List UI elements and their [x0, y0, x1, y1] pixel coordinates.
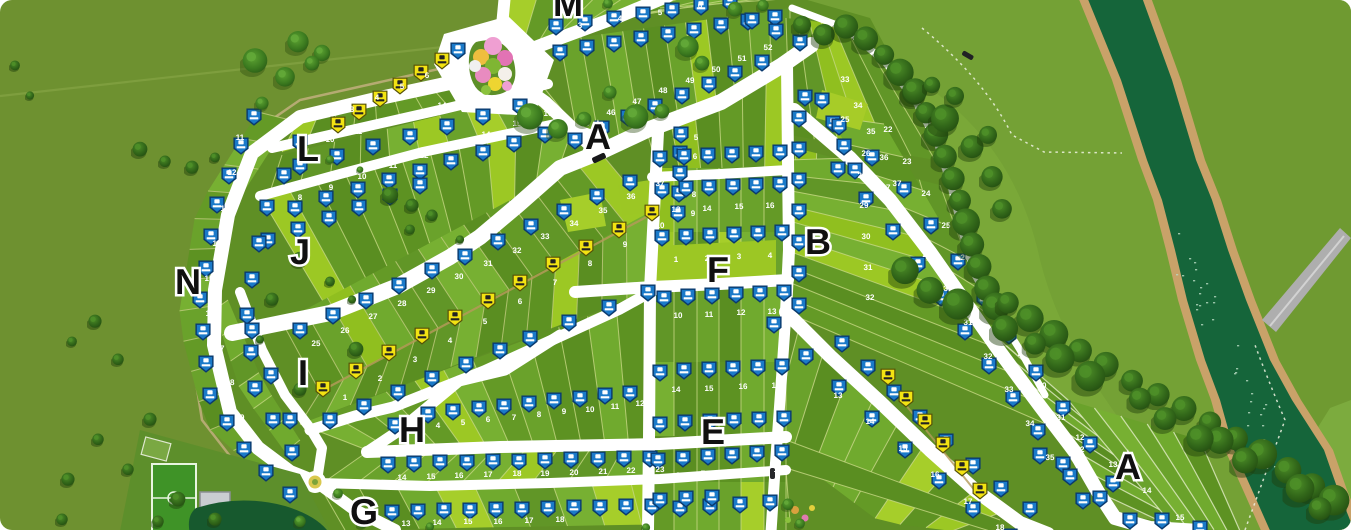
svg-text:22: 22 — [627, 466, 636, 475]
svg-text:9: 9 — [751, 467, 756, 476]
svg-text:H: H — [399, 409, 425, 450]
svg-text:36: 36 — [627, 192, 636, 201]
svg-text:17: 17 — [964, 497, 973, 506]
svg-text:11: 11 — [354, 127, 363, 136]
svg-text:11: 11 — [705, 310, 714, 319]
svg-text:14: 14 — [398, 473, 407, 482]
svg-text:52: 52 — [764, 43, 773, 52]
svg-text:14: 14 — [672, 385, 681, 394]
svg-text:13: 13 — [402, 519, 411, 528]
svg-text:12: 12 — [420, 151, 429, 160]
svg-text:34: 34 — [854, 101, 863, 110]
svg-text:15: 15 — [705, 384, 714, 393]
svg-text:17: 17 — [484, 470, 493, 479]
svg-text:31: 31 — [864, 263, 873, 272]
svg-text:N: N — [175, 261, 201, 302]
svg-text:25: 25 — [841, 115, 850, 124]
svg-text:31: 31 — [484, 259, 493, 268]
svg-text:19: 19 — [236, 413, 245, 422]
svg-text:12: 12 — [382, 118, 391, 127]
svg-text:M: M — [553, 0, 583, 24]
svg-text:11: 11 — [389, 161, 398, 170]
svg-text:14: 14 — [438, 101, 447, 110]
svg-text:14: 14 — [866, 417, 875, 426]
svg-text:33: 33 — [1005, 385, 1014, 394]
svg-text:15: 15 — [1176, 513, 1185, 522]
svg-text:18: 18 — [996, 523, 1005, 530]
svg-text:12: 12 — [228, 168, 237, 177]
svg-text:18: 18 — [556, 515, 565, 524]
svg-text:9: 9 — [562, 407, 567, 416]
svg-text:B: B — [805, 221, 831, 262]
svg-text:16: 16 — [931, 470, 940, 479]
svg-text:1: 1 — [674, 255, 679, 264]
svg-text:19: 19 — [541, 469, 550, 478]
svg-text:4: 4 — [618, 14, 623, 23]
svg-text:28: 28 — [858, 171, 867, 180]
svg-text:2: 2 — [378, 374, 383, 383]
svg-text:34: 34 — [570, 219, 579, 228]
svg-text:51: 51 — [738, 54, 747, 63]
svg-text:6: 6 — [518, 297, 523, 306]
svg-text:3: 3 — [413, 355, 418, 364]
svg-text:29: 29 — [860, 201, 869, 210]
svg-text:33: 33 — [841, 75, 850, 84]
svg-text:4: 4 — [375, 93, 380, 102]
svg-text:35: 35 — [867, 127, 876, 136]
svg-text:15: 15 — [427, 472, 436, 481]
svg-text:E: E — [701, 411, 725, 452]
svg-text:16: 16 — [206, 309, 215, 318]
svg-text:13: 13 — [768, 307, 777, 316]
svg-text:14: 14 — [482, 130, 491, 139]
svg-text:31: 31 — [1057, 413, 1066, 422]
svg-text:26: 26 — [862, 149, 871, 158]
svg-text:16: 16 — [544, 109, 553, 118]
svg-text:8: 8 — [298, 193, 303, 202]
svg-text:15: 15 — [205, 274, 214, 283]
svg-text:30: 30 — [455, 272, 464, 281]
svg-text:13: 13 — [672, 205, 681, 214]
svg-text:30: 30 — [1038, 381, 1047, 390]
svg-text:22: 22 — [884, 125, 893, 134]
svg-text:15: 15 — [899, 444, 908, 453]
svg-text:7: 7 — [701, 469, 706, 478]
svg-text:13: 13 — [410, 110, 419, 119]
svg-text:11: 11 — [611, 402, 620, 411]
svg-text:16: 16 — [739, 382, 748, 391]
svg-text:3: 3 — [737, 252, 742, 261]
svg-text:32: 32 — [984, 352, 993, 361]
svg-text:13: 13 — [834, 391, 843, 400]
svg-text:37: 37 — [893, 179, 902, 188]
svg-text:A: A — [1115, 446, 1141, 487]
svg-text:28: 28 — [902, 216, 911, 225]
svg-text:48: 48 — [659, 86, 668, 95]
svg-text:16: 16 — [766, 201, 775, 210]
svg-text:17: 17 — [772, 381, 781, 390]
svg-text:12: 12 — [636, 399, 645, 408]
svg-text:F: F — [707, 249, 729, 290]
svg-text:33: 33 — [541, 232, 550, 241]
svg-text:23: 23 — [656, 465, 665, 474]
svg-text:34: 34 — [1026, 419, 1035, 428]
svg-text:50: 50 — [712, 65, 721, 74]
svg-text:35: 35 — [1046, 453, 1055, 462]
svg-text:15: 15 — [466, 93, 475, 102]
svg-text:7: 7 — [512, 413, 517, 422]
svg-text:14: 14 — [1143, 486, 1152, 495]
svg-text:21: 21 — [599, 467, 608, 476]
svg-text:10: 10 — [774, 465, 783, 474]
svg-text:6: 6 — [698, 1, 703, 10]
svg-text:5: 5 — [483, 317, 488, 326]
svg-text:20: 20 — [570, 468, 579, 477]
svg-text:4: 4 — [436, 421, 441, 430]
svg-text:13: 13 — [221, 204, 230, 213]
svg-text:G: G — [350, 491, 378, 530]
svg-text:9: 9 — [623, 240, 628, 249]
svg-text:36: 36 — [880, 153, 889, 162]
svg-text:1: 1 — [343, 393, 348, 402]
svg-text:14: 14 — [213, 239, 222, 248]
svg-text:A: A — [585, 116, 611, 157]
svg-text:5: 5 — [658, 8, 663, 17]
svg-text:17: 17 — [525, 516, 534, 525]
svg-text:L: L — [297, 128, 319, 169]
svg-text:10: 10 — [586, 405, 595, 414]
svg-text:15: 15 — [464, 517, 473, 526]
svg-text:14: 14 — [703, 204, 712, 213]
svg-text:18: 18 — [226, 378, 235, 387]
svg-text:24: 24 — [922, 189, 931, 198]
svg-text:7: 7 — [450, 59, 455, 68]
svg-text:15: 15 — [735, 202, 744, 211]
svg-text:6: 6 — [693, 152, 698, 161]
svg-text:10: 10 — [326, 135, 335, 144]
svg-text:6: 6 — [676, 471, 681, 480]
svg-text:4: 4 — [448, 336, 453, 345]
svg-text:29: 29 — [923, 250, 932, 259]
svg-text:8: 8 — [726, 468, 731, 477]
svg-text:4: 4 — [768, 251, 773, 260]
svg-text:37: 37 — [656, 179, 665, 188]
svg-text:5: 5 — [694, 133, 699, 142]
svg-text:26: 26 — [341, 326, 350, 335]
svg-text:12: 12 — [1076, 433, 1085, 442]
svg-text:23: 23 — [903, 157, 912, 166]
svg-text:9: 9 — [691, 209, 696, 218]
svg-text:5: 5 — [461, 418, 466, 427]
svg-text:18: 18 — [513, 469, 522, 478]
svg-text:12: 12 — [737, 308, 746, 317]
svg-text:8: 8 — [692, 190, 697, 199]
svg-text:I: I — [298, 352, 308, 393]
svg-text:J: J — [290, 231, 310, 272]
svg-text:49: 49 — [686, 76, 695, 85]
svg-text:3: 3 — [350, 105, 355, 114]
svg-text:16: 16 — [494, 517, 503, 526]
svg-text:9: 9 — [329, 183, 334, 192]
svg-text:25: 25 — [312, 339, 321, 348]
svg-text:32: 32 — [866, 293, 875, 302]
svg-text:5: 5 — [400, 82, 405, 91]
svg-text:7: 7 — [553, 278, 558, 287]
svg-text:32: 32 — [1076, 445, 1085, 454]
svg-text:29: 29 — [427, 286, 436, 295]
svg-text:35: 35 — [599, 206, 608, 215]
svg-text:27: 27 — [882, 183, 891, 192]
svg-text:10: 10 — [674, 311, 683, 320]
svg-text:11: 11 — [236, 133, 245, 142]
svg-text:13: 13 — [451, 141, 460, 150]
svg-text:6: 6 — [486, 415, 491, 424]
svg-text:8: 8 — [537, 410, 542, 419]
svg-text:30: 30 — [862, 232, 871, 241]
svg-text:7: 7 — [692, 171, 697, 180]
svg-text:28: 28 — [398, 299, 407, 308]
svg-text:27: 27 — [369, 312, 378, 321]
svg-text:8: 8 — [588, 259, 593, 268]
svg-text:16: 16 — [455, 471, 464, 480]
svg-text:32: 32 — [513, 246, 522, 255]
svg-text:17: 17 — [216, 344, 225, 353]
svg-text:10: 10 — [656, 221, 665, 230]
svg-text:6: 6 — [425, 71, 430, 80]
